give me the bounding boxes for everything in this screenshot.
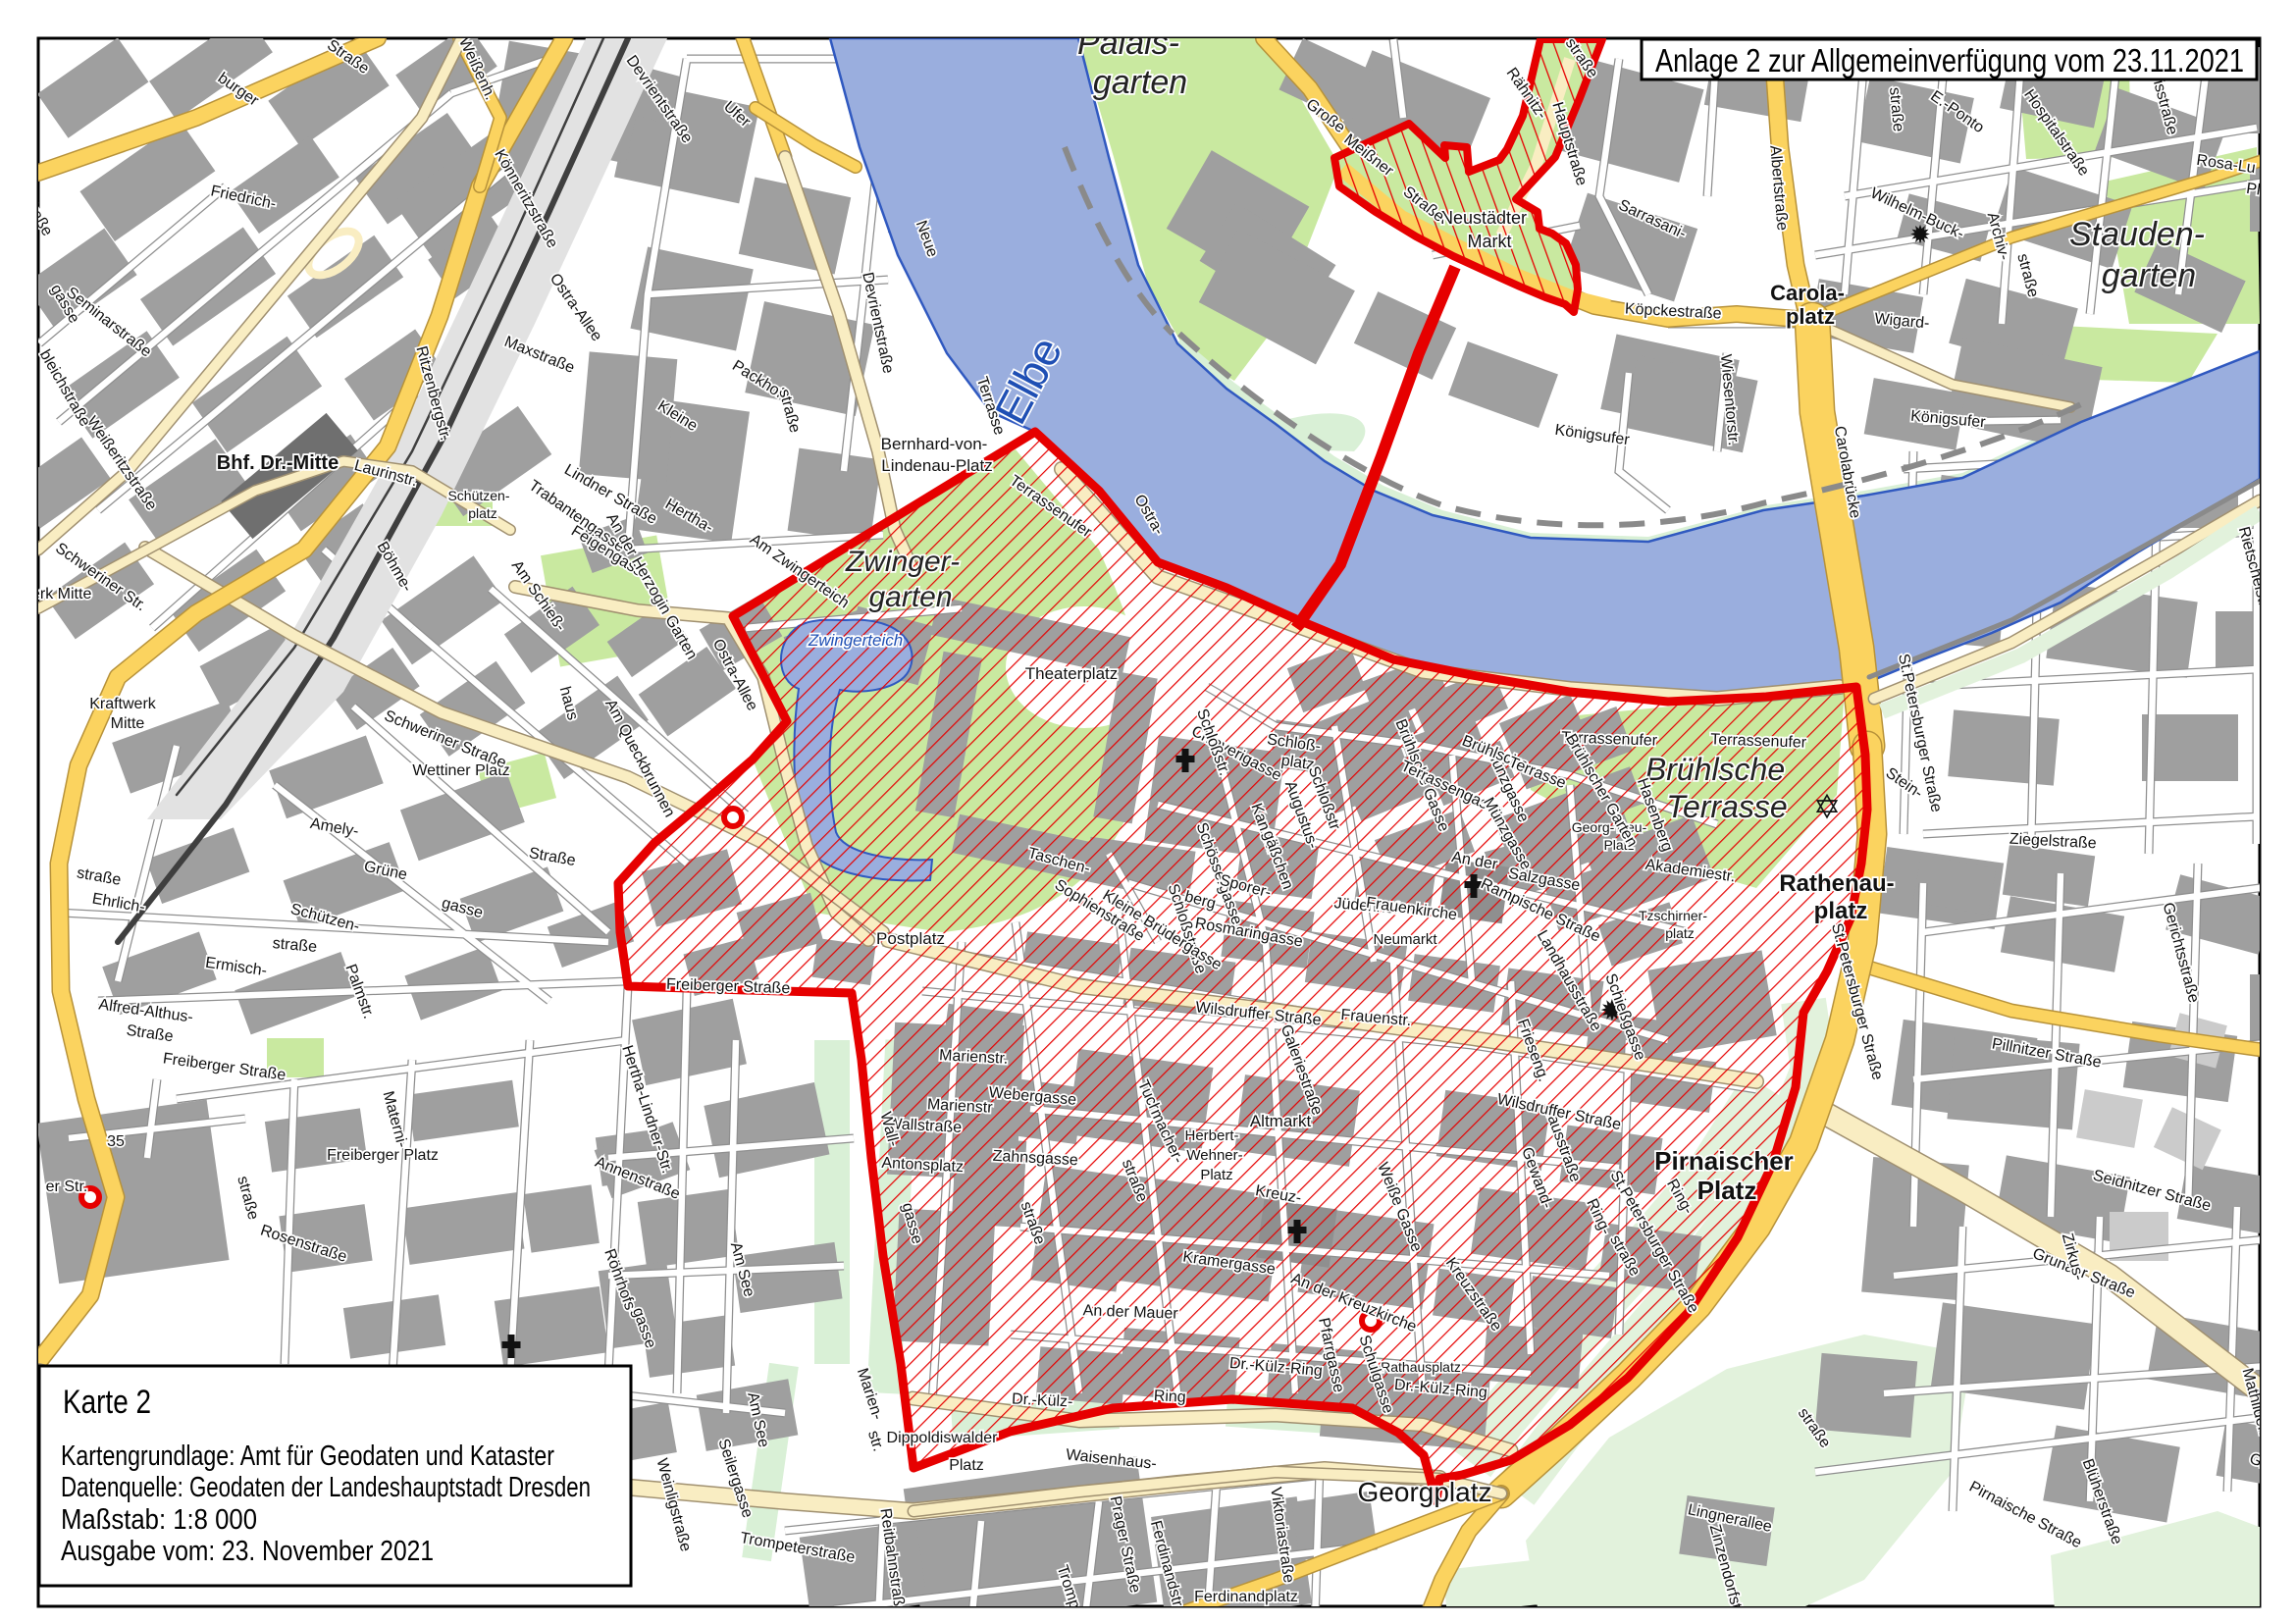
svg-text:Herbert-: Herbert- bbox=[1184, 1127, 1238, 1144]
svg-text:✡: ✡ bbox=[1813, 789, 1842, 826]
svg-text:Altmarkt: Altmarkt bbox=[1250, 1112, 1312, 1130]
svg-text:Postplatz: Postplatz bbox=[876, 929, 945, 948]
svg-text:An der Mauer: An der Mauer bbox=[1082, 1302, 1178, 1322]
svg-text:platz: platz bbox=[468, 505, 497, 521]
svg-text:Neumarkt: Neumarkt bbox=[1373, 931, 1437, 948]
svg-text:Stauden-: Stauden- bbox=[2069, 216, 2205, 253]
svg-text:er Str.: er Str. bbox=[46, 1179, 88, 1195]
svg-text:Karte 2: Karte 2 bbox=[63, 1384, 151, 1421]
svg-text:35: 35 bbox=[107, 1133, 125, 1150]
svg-text:Wehner-: Wehner- bbox=[1186, 1147, 1242, 1164]
svg-text:Mitte: Mitte bbox=[111, 715, 145, 732]
svg-text:garten: garten bbox=[868, 581, 952, 613]
svg-text:Terrasse: Terrasse bbox=[1666, 789, 1787, 824]
svg-text:platz: platz bbox=[1665, 925, 1695, 941]
svg-text:Freiberger Platz: Freiberger Platz bbox=[327, 1147, 439, 1164]
svg-text:Kraftwerk: Kraftwerk bbox=[89, 696, 157, 712]
svg-text:Rathausplatz: Rathausplatz bbox=[1381, 1359, 1461, 1375]
svg-text:Kartengrundlage: Amt für Geoda: Kartengrundlage: Amt für Geodaten und Ka… bbox=[61, 1441, 554, 1472]
svg-text:Dippoldiswalder: Dippoldiswalder bbox=[887, 1430, 999, 1446]
svg-text:Ring: Ring bbox=[1153, 1388, 1186, 1406]
svg-text:Tzschirner-: Tzschirner- bbox=[1639, 908, 1707, 923]
svg-text:platz: platz bbox=[1814, 898, 1868, 924]
svg-text:Dr.-Külz-: Dr.-Külz- bbox=[1012, 1390, 1073, 1410]
svg-text:Datenquelle: Geodaten der Land: Datenquelle: Geodaten der Landeshauptsta… bbox=[61, 1472, 591, 1503]
svg-text:Zwingerteich: Zwingerteich bbox=[808, 631, 903, 650]
svg-text:Ausgabe vom: 23. November 2021: Ausgabe vom: 23. November 2021 bbox=[61, 1536, 434, 1567]
svg-text:garten: garten bbox=[1093, 64, 1187, 101]
svg-text:garten: garten bbox=[2102, 257, 2196, 294]
svg-text:Neustädter: Neustädter bbox=[1440, 208, 1527, 228]
svg-text:Anlage 2 zur Allgemeinverfügun: Anlage 2 zur Allgemeinverfügung vom 23.1… bbox=[1655, 42, 2244, 79]
svg-text:Terrassenufer: Terrassenufer bbox=[1710, 731, 1807, 751]
svg-text:Bhf. Dr.-Mitte: Bhf. Dr.-Mitte bbox=[217, 452, 339, 474]
svg-text:Maßstab: 1:8 000: Maßstab: 1:8 000 bbox=[61, 1504, 257, 1536]
svg-text:Schützen-: Schützen- bbox=[447, 488, 509, 503]
svg-text:Lindenau-Platz: Lindenau-Platz bbox=[881, 456, 992, 475]
svg-text:Platz: Platz bbox=[1697, 1176, 1757, 1205]
svg-text:Georgplatz: Georgplatz bbox=[1358, 1477, 1492, 1507]
svg-text:Marienstr: Marienstr bbox=[926, 1096, 993, 1117]
svg-text:Carola-: Carola- bbox=[1770, 281, 1845, 305]
svg-text:Brühlsche: Brühlsche bbox=[1645, 752, 1785, 787]
svg-text:Pirnaischer: Pirnaischer bbox=[1654, 1146, 1794, 1176]
svg-text:Platz: Platz bbox=[1200, 1167, 1232, 1183]
svg-text:Theaterplatz: Theaterplatz bbox=[1025, 664, 1119, 683]
svg-text:Zwinger-: Zwinger- bbox=[845, 546, 960, 578]
svg-text:Ferdinandplatz: Ferdinandplatz bbox=[1194, 1589, 1298, 1605]
svg-text:Platz: Platz bbox=[949, 1457, 984, 1474]
svg-text:Markt: Markt bbox=[1468, 232, 1512, 251]
svg-text:Bernhard-von-: Bernhard-von- bbox=[881, 435, 988, 453]
svg-text:Rathenau-: Rathenau- bbox=[1779, 870, 1894, 897]
svg-text:platz: platz bbox=[1786, 304, 1835, 329]
